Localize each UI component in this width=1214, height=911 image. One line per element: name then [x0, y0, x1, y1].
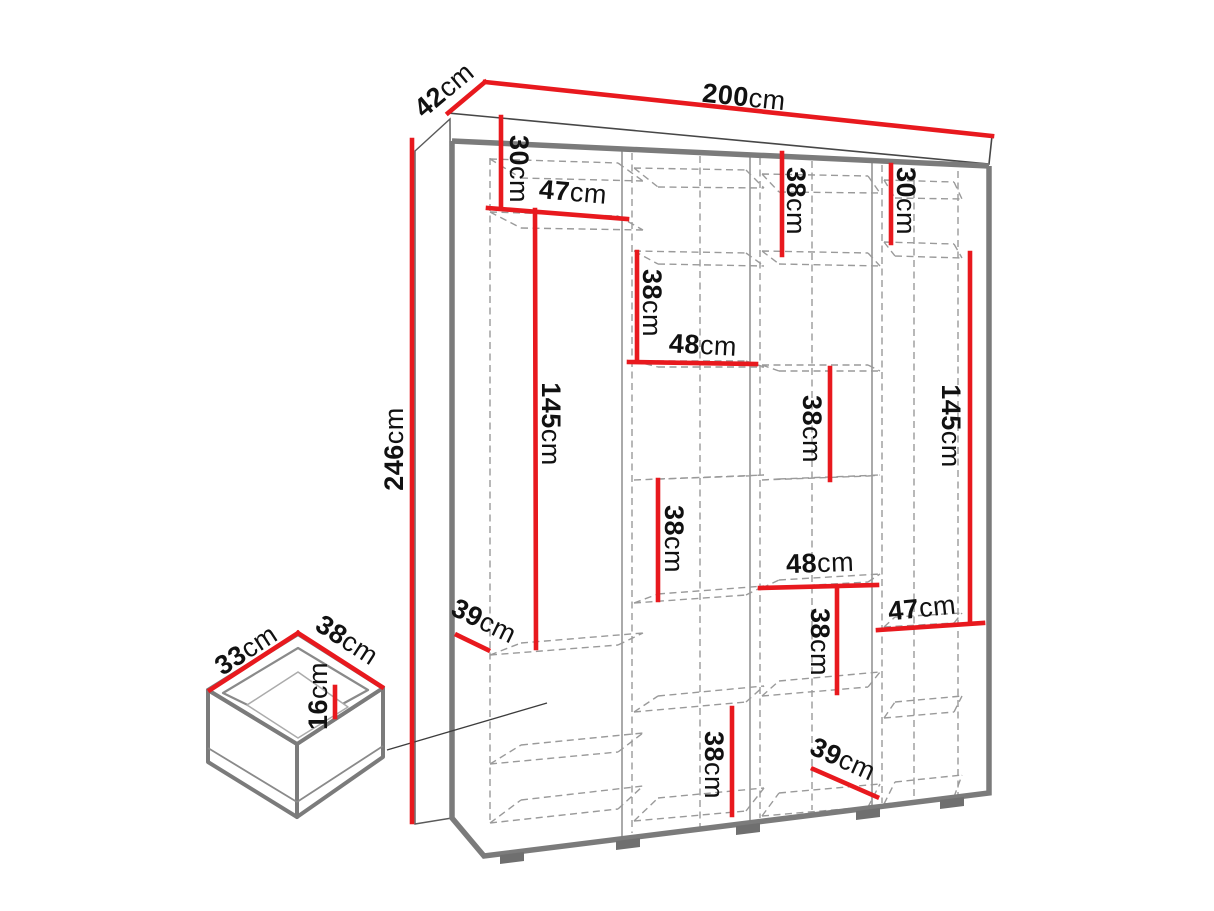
dimension-label-col3-bottom-height: 39cm [806, 731, 880, 786]
diagram-canvas: 42cm200cm246cm30cm47cm38cm30cm38cm48cm14… [0, 0, 1214, 911]
dimension-label-col2-bottom-height: 38cm [699, 731, 729, 799]
dimension-label-col3-mid-height: 38cm [797, 395, 827, 463]
wardrobe-dimensions-diagram: 42cm200cm246cm30cm47cm38cm30cm38cm48cm14… [0, 0, 1214, 911]
dimension-label-col1-top-height: 30cm [504, 135, 534, 203]
dimension-label-col3-top-height: 38cm [781, 167, 811, 235]
dimension-label-col1-hanging-height: 145cm [536, 382, 566, 466]
dimension-label-drawer-height: 16cm [303, 662, 333, 730]
dimension-line-col1-hanging-height [535, 210, 536, 648]
dimension-line-col3-width [760, 585, 877, 588]
dimension-label-col2-width: 48cm [668, 328, 738, 362]
dimension-label-col1-width: 47cm [538, 174, 608, 210]
dimension-label-col1-lower-height: 39cm [447, 593, 521, 650]
cabinet-side-panel [415, 119, 452, 824]
dimension-label-wardrobe-height: 246cm [379, 407, 409, 491]
dimension-label-col3-width: 48cm [785, 547, 854, 579]
dimension-line-col2-width [629, 362, 756, 364]
dimension-layer: 42cm200cm246cm30cm47cm38cm30cm38cm48cm14… [209, 57, 992, 822]
dimension-label-col4-width: 47cm [887, 590, 958, 627]
dimension-label-col2-upper-height: 38cm [637, 269, 667, 337]
dimension-label-col3-lower-height: 38cm [805, 608, 835, 676]
dimension-label-col2-mid-height: 38cm [659, 505, 689, 573]
dimension-label-col4-hanging-height: 145cm [936, 384, 966, 468]
dimension-label-col4-top-height: 30cm [891, 167, 921, 235]
dimension-line-col1-width [488, 208, 627, 219]
